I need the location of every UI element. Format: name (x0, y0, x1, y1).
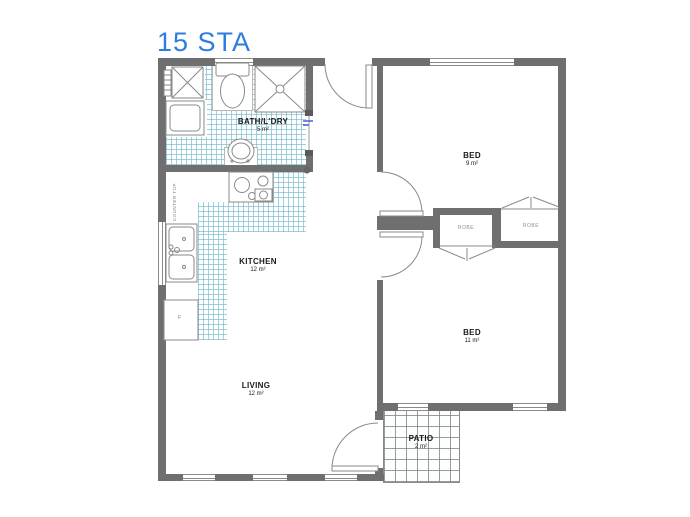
fridge-label: F (178, 315, 181, 321)
robe-label-left: ROBE (458, 225, 474, 231)
washing-machine-icon (164, 67, 203, 98)
room-label-bed1: BED 9 m² (463, 151, 481, 167)
room-label-living: LIVING 12 m² (242, 381, 270, 397)
toilet-icon (216, 63, 249, 108)
laundry-tub-icon (166, 101, 204, 135)
counter-top-label: COUNTER TOP (172, 183, 177, 221)
room-label-bed2: BED 11 m² (463, 328, 481, 344)
robe-left-door (439, 246, 495, 261)
room-label-patio: PATIO 2 m² (409, 434, 434, 450)
bed2-door (380, 232, 423, 277)
floor-plan: 15 STA (0, 0, 690, 517)
entry-door (325, 64, 372, 108)
plan-title: 15 STA (157, 27, 251, 58)
patio-door (332, 423, 378, 471)
cooktop-icon (229, 172, 273, 202)
bed1-door (380, 172, 423, 216)
robe-right-door (501, 197, 559, 209)
basin-icon (228, 139, 254, 163)
room-label-bath: BATH/L'DRY 5 m² (238, 117, 288, 133)
room-label-kitchen: KITCHEN 12 m² (239, 257, 277, 273)
fixture-linework (0, 0, 690, 517)
shower-icon (255, 66, 305, 112)
bathroom-slider-door (303, 110, 313, 174)
kitchen-sink-icon (166, 224, 197, 282)
robe-label-right: ROBE (523, 223, 539, 229)
